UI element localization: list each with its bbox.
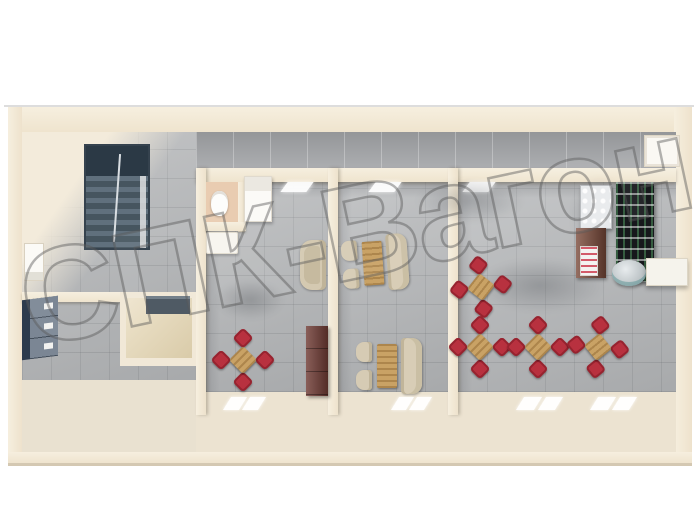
booth-table	[377, 344, 397, 388]
floorplan-render: СПК-Вагон	[0, 0, 700, 525]
booth-bench	[401, 338, 422, 394]
entry-door-west	[24, 243, 44, 281]
north-corridor-floor	[196, 132, 676, 168]
floor-shadow	[415, 178, 525, 223]
beige-chair	[340, 240, 357, 261]
locker-label	[44, 342, 53, 349]
booth-table	[361, 241, 384, 286]
product-box	[580, 246, 598, 276]
room3-south-window-2	[590, 397, 638, 410]
beige-chair	[342, 268, 359, 289]
locker-cabinets	[22, 296, 58, 360]
staircase	[86, 146, 148, 248]
corridor-east-door	[644, 135, 680, 167]
south-wall-shadow	[8, 463, 692, 466]
dining-table	[466, 333, 494, 361]
utility-room	[120, 292, 196, 366]
hall-room1-divider-wall	[196, 168, 206, 415]
tall-dark-red-cabinet	[306, 326, 328, 396]
floor-shadow	[215, 280, 285, 320]
beige-chair	[356, 342, 372, 362]
stair-stringer	[140, 176, 146, 248]
booth-dining-set	[340, 233, 412, 294]
white-wall-shelf	[646, 258, 688, 286]
west-exterior-wall	[8, 107, 22, 463]
locker-label	[44, 302, 53, 309]
armchair-cushion	[304, 246, 320, 284]
toilet	[211, 191, 228, 216]
cooler-drum	[612, 260, 646, 286]
wire-glass-rack	[580, 185, 612, 229]
booth-bench	[385, 233, 410, 290]
hall-walkway-floor	[22, 380, 196, 452]
wc-cubicle-wall-bottom	[206, 222, 246, 231]
armchair	[300, 240, 326, 290]
room1-room2-divider-wall	[328, 168, 338, 415]
north-exterior-wall	[8, 107, 692, 132]
dining-table	[467, 273, 495, 301]
booth-dining-set	[356, 338, 424, 394]
locker-label	[44, 322, 53, 329]
sink-counter	[206, 232, 238, 254]
utility-counter	[146, 296, 190, 314]
fridge-cabinet	[244, 176, 272, 222]
dining-table	[524, 333, 552, 361]
beige-chair	[356, 370, 372, 390]
dining-table	[229, 346, 257, 374]
room3-south-window-1	[516, 397, 564, 410]
south-exterior-wall	[8, 452, 692, 463]
dining-table	[584, 333, 612, 361]
locker-side-panel	[22, 299, 30, 360]
